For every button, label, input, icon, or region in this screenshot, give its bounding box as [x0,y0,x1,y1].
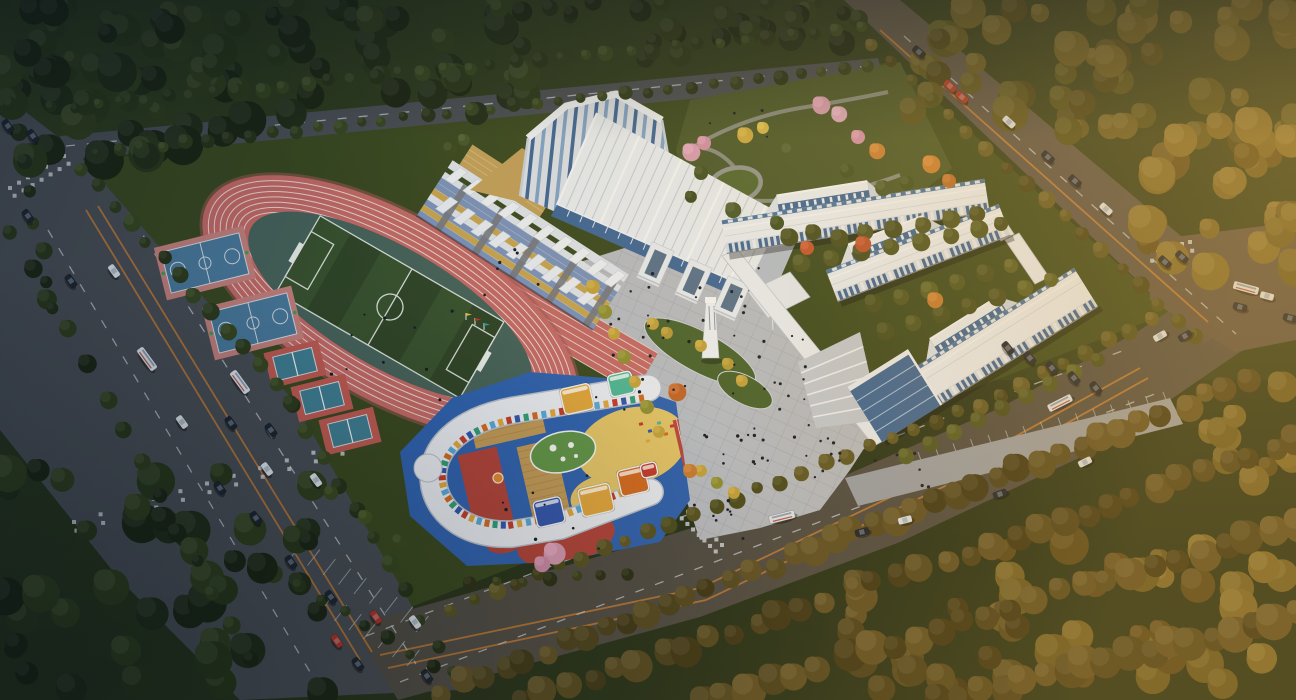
campus-aerial-rendering [0,0,1296,700]
lighting-layer [0,0,1296,700]
scene-svg [0,0,1296,700]
